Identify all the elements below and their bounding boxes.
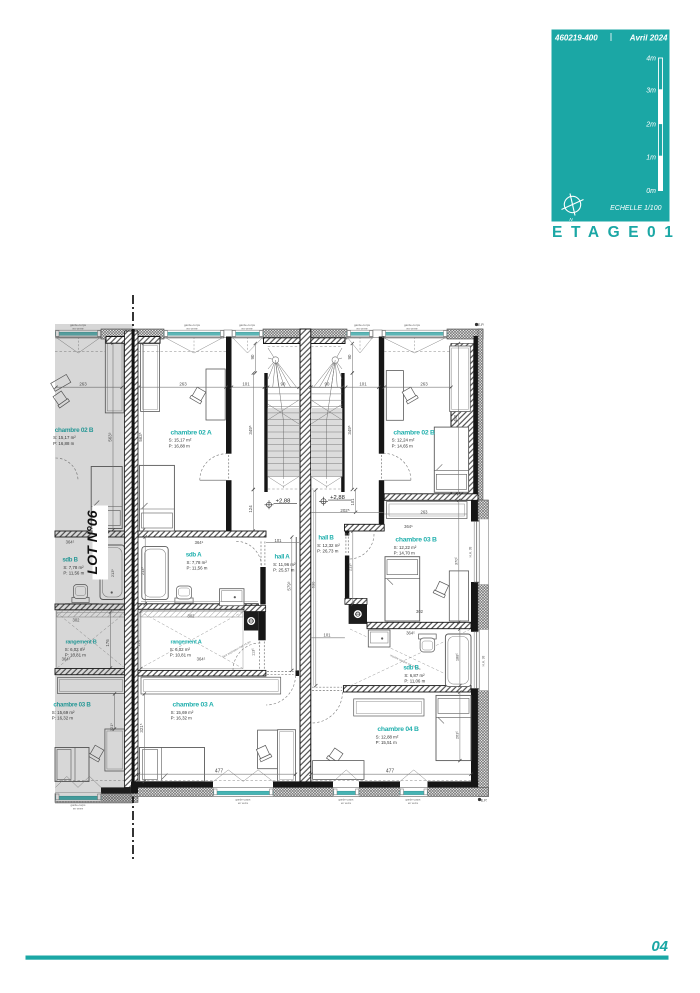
svg-text:E.P.: E.P. [478,323,484,327]
svg-text:349⁵: 349⁵ [248,425,253,434]
svg-text:S: 12,24 m²: S: 12,24 m² [392,438,415,443]
svg-text:P: 15,51 m: P: 15,51 m [376,740,398,745]
svg-text:321⁵: 321⁵ [139,723,144,732]
svg-text:124: 124 [248,505,253,513]
svg-text:hall A: hall A [275,554,291,561]
svg-text:en verre: en verre [341,801,352,805]
svg-text:S: 6,02 m²: S: 6,02 m² [170,647,191,652]
svg-text:Avril 2024: Avril 2024 [629,34,668,43]
svg-text:302: 302 [188,613,196,618]
svg-text:302: 302 [416,609,424,614]
svg-text:263: 263 [420,382,428,387]
svg-text:04: 04 [651,938,668,955]
svg-text:chambre 03 B: chambre 03 B [395,537,437,544]
svg-text:H.A. 38: H.A. 38 [469,546,473,557]
svg-text:S: 7,78 m²: S: 7,78 m² [187,560,208,565]
svg-text:S: 12,88 m²: S: 12,88 m² [376,734,399,739]
svg-text:176: 176 [136,639,141,646]
svg-text:chambre 04 B: chambre 04 B [377,726,419,733]
svg-text:113⁵: 113⁵ [252,648,256,656]
svg-text:P: 14,65 m: P: 14,65 m [392,444,414,449]
svg-text:P: 11,56 m: P: 11,56 m [187,566,208,571]
svg-text:P: 16,88 m: P: 16,88 m [169,444,191,449]
svg-text:en verre: en verre [406,327,417,331]
svg-text:2m: 2m [645,122,656,129]
svg-text:452: 452 [453,414,458,422]
svg-text:sdb B: sdb B [403,666,419,672]
svg-text:hall B: hall B [318,535,334,542]
svg-text:364⁵: 364⁵ [404,524,413,529]
svg-text:263: 263 [179,382,187,387]
svg-text:4m: 4m [646,56,656,63]
svg-text:en verre: en verre [238,801,249,805]
svg-text:en verre: en verre [186,327,197,331]
svg-text:chambre 02 B: chambre 02 B [393,429,435,436]
svg-text:364⁵: 364⁵ [406,630,415,635]
svg-text:460219-400: 460219-400 [554,34,598,43]
svg-text:P: 25,57 m: P: 25,57 m [273,568,295,573]
svg-text:188⁵: 188⁵ [455,652,460,661]
svg-text:101: 101 [324,632,332,637]
svg-text:579⁵: 579⁵ [286,581,291,590]
svg-text:0m: 0m [646,188,656,195]
svg-text:P: 16,32 m: P: 16,32 m [171,716,193,721]
svg-text:P: 26,73 m: P: 26,73 m [317,549,339,554]
svg-text:chambre 03 A: chambre 03 A [173,702,214,709]
svg-text:en verre: en verre [73,806,84,810]
svg-text:90: 90 [250,354,255,359]
svg-text:101: 101 [242,382,250,387]
svg-text:H.A. 98: H.A. 98 [482,655,486,666]
svg-text:S: 15,17 m²: S: 15,17 m² [169,438,192,443]
svg-text:en verre: en verre [241,327,252,331]
svg-text:sdb A: sdb A [186,552,202,559]
svg-text:349⁵: 349⁵ [347,425,352,434]
svg-text:en verre: en verre [356,327,367,331]
svg-text:477: 477 [215,769,224,775]
svg-text:364⁵: 364⁵ [197,657,206,662]
svg-text:477: 477 [386,769,395,775]
svg-text:ECHELLE 1/100: ECHELLE 1/100 [610,205,661,212]
svg-text:S: 12,32 m²: S: 12,32 m² [317,543,340,548]
svg-text:1m: 1m [646,155,656,162]
svg-text:90: 90 [347,354,352,359]
svg-text:563⁵: 563⁵ [138,432,143,441]
svg-text:263: 263 [421,509,429,514]
svg-text:213⁵: 213⁵ [140,566,145,575]
svg-text:ETAGE: ETAGE [552,224,647,241]
svg-text:3m: 3m [646,88,656,95]
svg-text:LOT N°06: LOT N°06 [85,510,101,574]
svg-text:630: 630 [311,581,316,588]
svg-text:rangement A: rangement A [171,640,202,646]
svg-text:101: 101 [359,382,367,387]
svg-text:chambre 02 A: chambre 02 A [171,429,212,436]
svg-text:P: 11,06 m: P: 11,06 m [404,679,425,684]
svg-text:S: 6,87 m²: S: 6,87 m² [404,673,425,678]
svg-text:S: 12,22 m²: S: 12,22 m² [394,545,417,550]
svg-text:E.P.: E.P. [481,799,487,803]
svg-text:364⁵: 364⁵ [195,540,204,545]
svg-text:en verre: en verre [408,801,419,805]
svg-text:90: 90 [325,382,330,387]
svg-text:P: 14,70 m: P: 14,70 m [394,551,416,556]
svg-text:01: 01 [647,224,681,241]
svg-text:213⁵: 213⁵ [348,562,353,571]
svg-text:P: 10,81 m: P: 10,81 m [170,653,192,658]
svg-text:370⁵: 370⁵ [454,556,459,565]
svg-text:S: 15,69 m²: S: 15,69 m² [171,710,194,715]
svg-text:S: 11,96 m²: S: 11,96 m² [273,562,296,567]
svg-text:90: 90 [281,382,286,387]
svg-text:101: 101 [350,498,355,506]
svg-text:263⁵: 263⁵ [455,730,460,739]
